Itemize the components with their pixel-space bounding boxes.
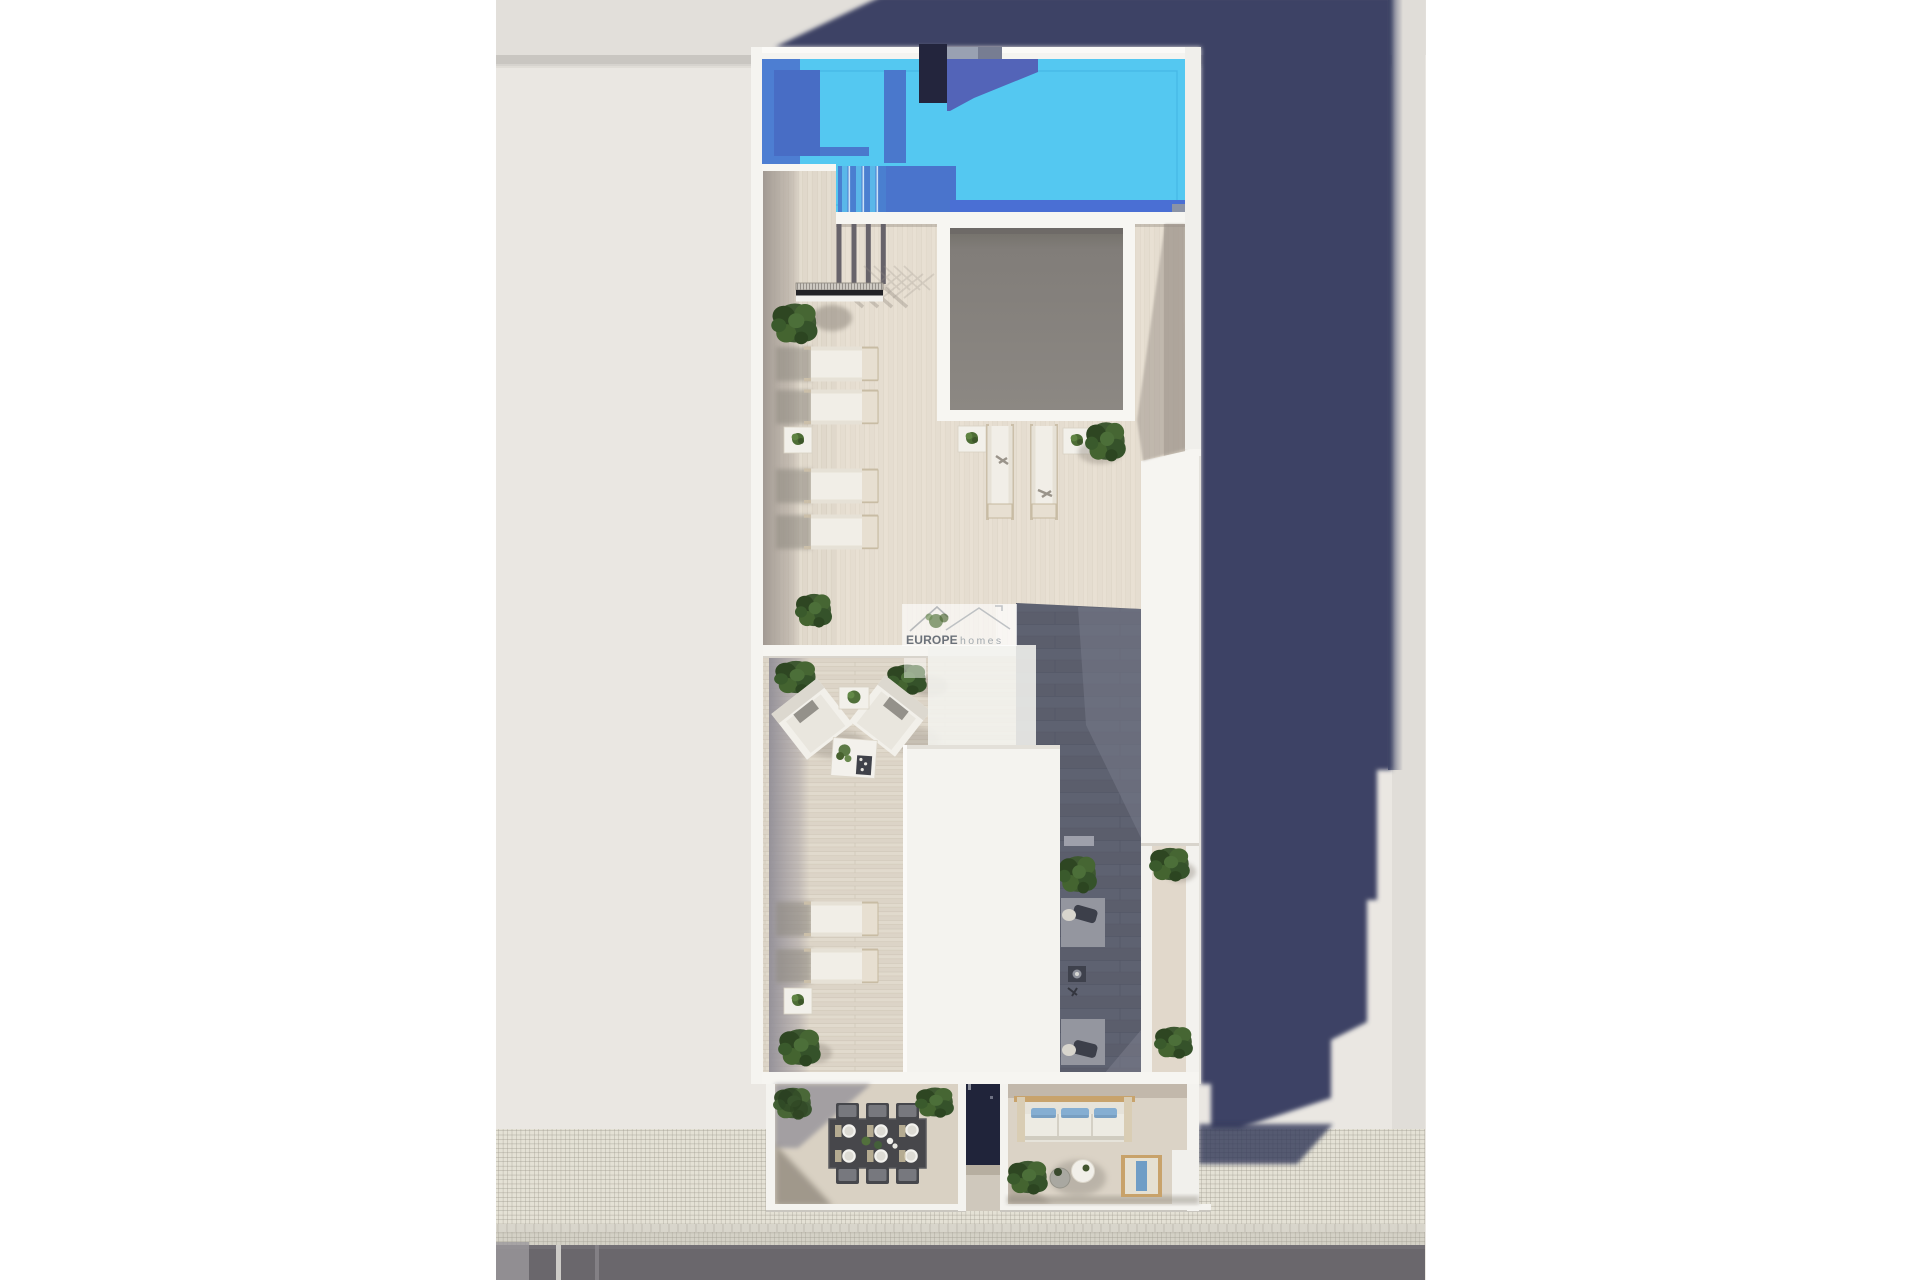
svg-text:EUROPE: EUROPE <box>906 633 958 647</box>
svg-text:homes: homes <box>960 635 1004 647</box>
